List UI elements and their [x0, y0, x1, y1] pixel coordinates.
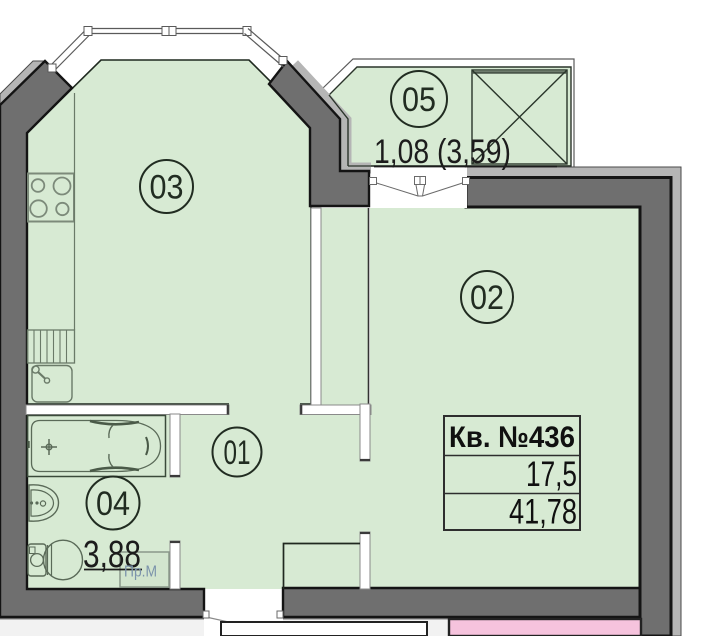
- svg-text:05: 05: [402, 81, 436, 119]
- svg-text:41,78: 41,78: [509, 493, 577, 532]
- svg-text:17,5: 17,5: [526, 455, 577, 494]
- svg-text:02: 02: [470, 279, 504, 317]
- svg-text:01: 01: [224, 434, 251, 472]
- svg-text:04: 04: [96, 485, 130, 523]
- svg-text:Кв. №436: Кв. №436: [449, 421, 575, 454]
- svg-text:1,08 (3,59): 1,08 (3,59): [374, 133, 511, 171]
- svg-text:Пр.М: Пр.М: [124, 564, 157, 581]
- svg-text:03: 03: [150, 169, 184, 207]
